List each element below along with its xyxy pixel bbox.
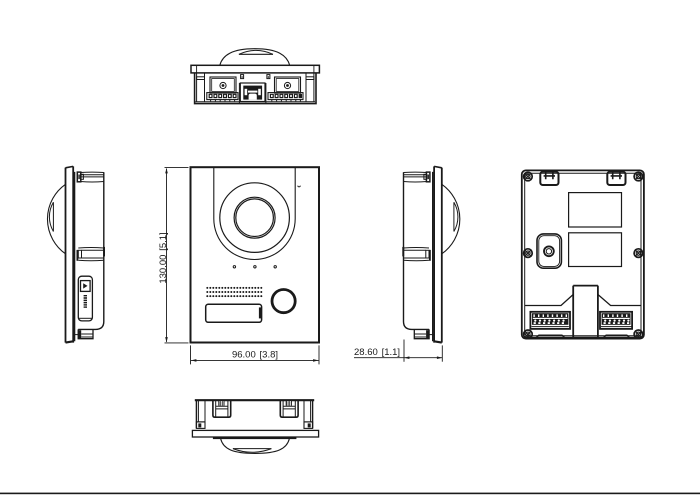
svg-text:130.00 [5.1]: 130.00 [5.1] bbox=[158, 232, 169, 283]
svg-text:28.60 [1.1]: 28.60 [1.1] bbox=[354, 347, 400, 358]
svg-text:96.00 [3.8]: 96.00 [3.8] bbox=[232, 349, 278, 360]
